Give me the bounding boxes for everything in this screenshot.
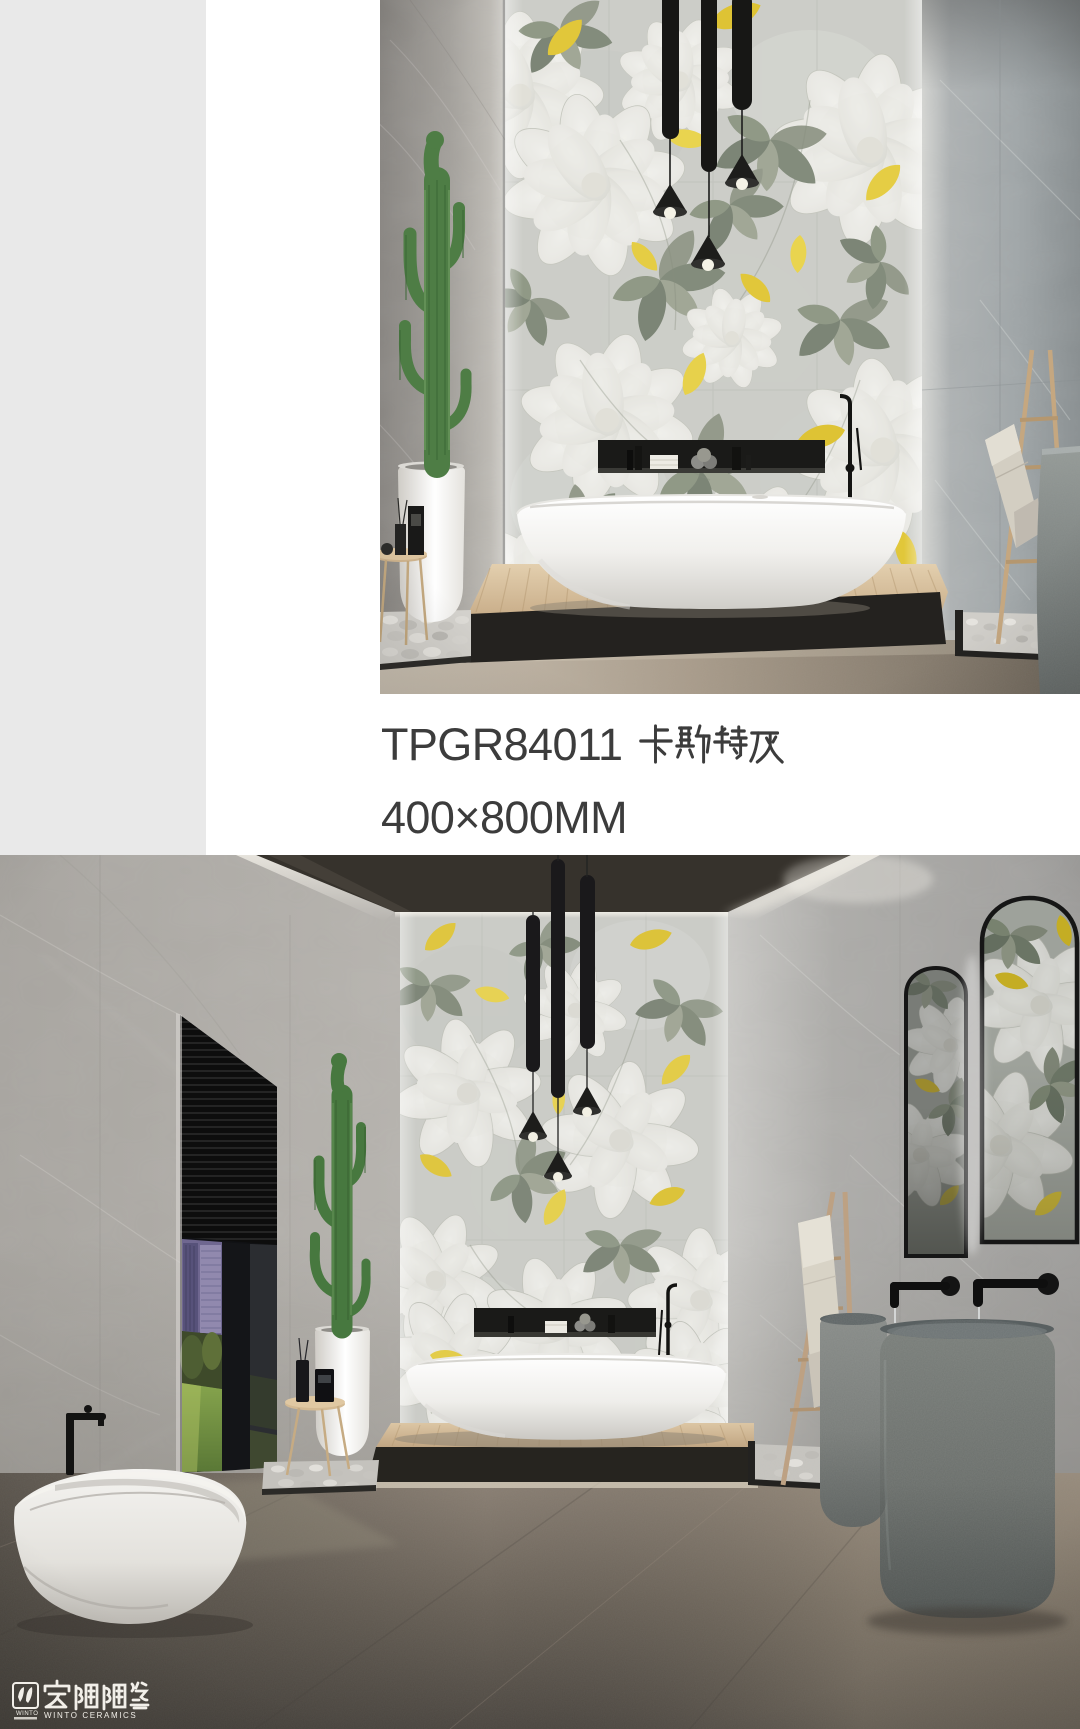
- svg-text:WINTO: WINTO: [16, 1711, 38, 1717]
- svg-text:WINTO CERAMICS: WINTO CERAMICS: [44, 1711, 137, 1720]
